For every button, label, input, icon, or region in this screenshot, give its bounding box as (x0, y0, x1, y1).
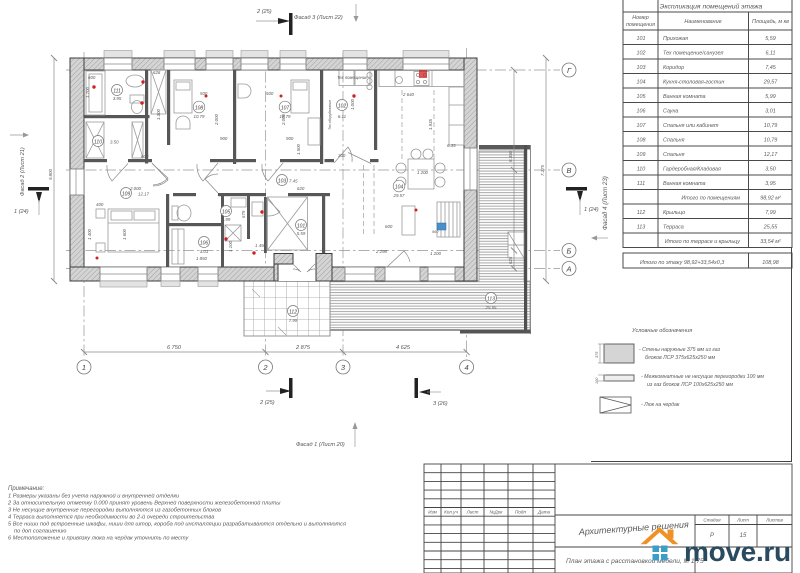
svg-text:110: 110 (637, 167, 646, 173)
svg-text:- Люк на чердак: - Люк на чердак (641, 402, 680, 408)
svg-text:Кухня-столовая-гостин: Кухня-столовая-гостин (663, 80, 724, 86)
svg-text:1 Размеры указаны без учета н: 1 Размеры указаны без учета наружной и в… (8, 493, 180, 500)
svg-text:Спальня: Спальня (663, 152, 685, 158)
svg-text:Кол.уч: Кол.уч (444, 510, 458, 515)
svg-text:1.700: 1.700 (85, 86, 90, 98)
svg-text:Тех помещение: Тех помещение (337, 75, 368, 80)
svg-text:500: 500 (266, 91, 274, 96)
svg-text:105: 105 (222, 210, 231, 216)
svg-text:6.11: 6.11 (338, 114, 347, 119)
svg-text:5,59: 5,59 (765, 36, 776, 42)
svg-text:626: 626 (153, 70, 161, 75)
svg-text:1 200: 1 200 (417, 170, 429, 175)
svg-text:1: 1 (82, 363, 86, 372)
svg-text:107: 107 (281, 106, 290, 112)
svg-text:112: 112 (637, 210, 646, 216)
svg-text:105: 105 (637, 94, 647, 100)
svg-text:400: 400 (96, 202, 104, 207)
svg-text:Крыльцо: Крыльцо (663, 210, 685, 216)
svg-text:375: 375 (595, 351, 599, 358)
svg-text:106: 106 (637, 109, 646, 115)
svg-text:Б: Б (567, 247, 572, 256)
svg-text:108,98: 108,98 (762, 260, 779, 266)
svg-text:12.17: 12.17 (138, 192, 150, 197)
svg-text:33,54 м²: 33,54 м² (760, 239, 781, 245)
svg-text:3 (26): 3 (26) (433, 401, 448, 407)
svg-text:109: 109 (637, 152, 646, 158)
svg-text:2.000: 2.000 (281, 113, 286, 126)
svg-text:3.95: 3.95 (113, 96, 122, 101)
svg-text:300: 300 (338, 153, 346, 158)
svg-text:5.99: 5.99 (222, 217, 231, 222)
svg-text:Итого по помещениям: Итого по помещениям (681, 196, 740, 202)
svg-text:7,45: 7,45 (765, 65, 776, 71)
svg-text:- Межкомнатные не несущие пер: - Межкомнатные не несущие перегородки 10… (641, 374, 764, 380)
svg-text:3,50: 3,50 (765, 167, 776, 173)
svg-text:Стадия: Стадия (703, 518, 721, 523)
svg-text:Лист: Лист (466, 510, 479, 515)
svg-text:10,79: 10,79 (764, 138, 778, 144)
svg-text:113: 113 (487, 297, 495, 303)
svg-text:112: 112 (289, 310, 297, 316)
svg-text:Спальня: Спальня (663, 138, 685, 144)
svg-text:1.000: 1.000 (350, 98, 355, 110)
svg-text:600: 600 (385, 224, 393, 229)
svg-text:107: 107 (637, 123, 647, 129)
svg-text:102: 102 (637, 51, 646, 57)
svg-text:8.350: 8.350 (508, 150, 513, 162)
svg-text:679: 679 (241, 210, 246, 218)
svg-text:Терраса: Терраса (663, 225, 684, 231)
svg-text:Листов: Листов (765, 518, 783, 523)
svg-text:900: 900 (220, 136, 228, 141)
svg-text:111: 111 (637, 181, 645, 187)
svg-text:625: 625 (508, 256, 513, 264)
svg-text:7.175: 7.175 (540, 164, 545, 176)
svg-text:Лист: Лист (736, 518, 749, 523)
svg-text:106: 106 (200, 241, 209, 247)
svg-text:6 750: 6 750 (167, 345, 182, 351)
svg-text:109: 109 (122, 192, 131, 198)
svg-text:500: 500 (200, 91, 208, 96)
svg-text:3.01: 3.01 (200, 249, 209, 254)
svg-text:из газ блоков ЛСР 100х625х250: из газ блоков ЛСР 100х625х250 мм (647, 382, 733, 388)
svg-text:Изм: Изм (428, 510, 437, 515)
svg-text:Прихожая: Прихожая (663, 36, 688, 42)
svg-text:101: 101 (637, 36, 646, 42)
svg-text:4 Терраса выполняется при нео: 4 Терраса выполняется при необходимости … (8, 514, 214, 521)
svg-text:Сауна: Сауна (663, 109, 678, 115)
svg-text:104: 104 (637, 80, 646, 86)
svg-text:- Стены наружные 375 мм из га: - Стены наружные 375 мм из газ (639, 347, 721, 353)
svg-text:600: 600 (88, 75, 96, 80)
svg-text:108: 108 (637, 138, 646, 144)
svg-text:1.935: 1.935 (428, 118, 433, 130)
svg-text:108: 108 (195, 106, 204, 112)
svg-text:1 (24): 1 (24) (584, 207, 599, 213)
svg-text:В: В (566, 166, 571, 175)
svg-text:1.300: 1.300 (156, 108, 161, 120)
svg-text:9.800: 9.800 (48, 168, 53, 180)
svg-text:102: 102 (338, 104, 347, 110)
svg-text:29,57: 29,57 (763, 80, 778, 86)
svg-text:А: А (565, 265, 571, 274)
svg-text:100: 100 (595, 377, 599, 384)
svg-text:2 875: 2 875 (295, 345, 311, 351)
svg-text:1 600: 1 600 (122, 228, 127, 240)
svg-text:Тех помещение/санузел: Тех помещение/санузел (663, 51, 723, 57)
svg-text:Экспликация помещений этажа: Экспликация помещений этажа (660, 3, 763, 11)
svg-text:7.99: 7.99 (289, 318, 298, 323)
svg-text:1 450: 1 450 (255, 243, 267, 248)
svg-text:3 Не несущие внутренние перег: 3 Не несущие внутренние перегородки выпо… (8, 508, 221, 514)
svg-text:Условные обозначения: Условные обозначения (631, 328, 692, 334)
svg-text:Подп: Подп (515, 510, 526, 515)
svg-text:101: 101 (297, 224, 306, 230)
svg-text:2 298: 2 298 (375, 249, 388, 254)
svg-text:блоков ЛСР 375х625х250 мм: блоков ЛСР 375х625х250 мм (645, 355, 715, 361)
svg-text:111: 111 (113, 89, 121, 95)
svg-text:1 850: 1 850 (196, 256, 208, 261)
svg-text:3,01: 3,01 (765, 109, 776, 115)
svg-text:900: 900 (286, 136, 294, 141)
svg-text:620: 620 (297, 186, 305, 191)
svg-text:1 (24): 1 (24) (14, 209, 29, 215)
svg-text:7.45: 7.45 (289, 179, 298, 184)
svg-text:113: 113 (637, 225, 646, 231)
svg-text:10,79: 10,79 (764, 123, 778, 129)
svg-text:5.59: 5.59 (297, 231, 306, 236)
svg-text:25,55: 25,55 (763, 225, 778, 231)
svg-text:2.000: 2.000 (129, 186, 142, 191)
svg-text:Площадь, м кв: Площадь, м кв (752, 19, 789, 25)
svg-text:103: 103 (278, 179, 287, 185)
svg-text:Итого по этажу 98,92+33,54х0,: Итого по этажу 98,92+33,54х0,3 (640, 260, 724, 266)
svg-text:600: 600 (141, 154, 149, 159)
svg-text:Наименование: Наименование (684, 19, 721, 25)
svg-text:98,92 м²: 98,92 м² (760, 196, 781, 202)
svg-text:Итого по террасе и крыльцу: Итого по террасе и крыльцу (665, 239, 741, 245)
svg-text:Спальня или кабинет: Спальня или кабинет (663, 123, 719, 129)
svg-text:3.50: 3.50 (110, 140, 119, 145)
svg-text:4: 4 (465, 363, 469, 372)
svg-text:Фасад 2 (Лист 21): Фасад 2 (Лист 21) (20, 147, 26, 196)
svg-text:104: 104 (395, 185, 404, 191)
svg-text:2 (25): 2 (25) (259, 400, 275, 406)
svg-text:5,99: 5,99 (765, 94, 776, 100)
svg-text:по доп соглашению: по доп соглашению (14, 529, 67, 535)
svg-text:960: 960 (432, 230, 439, 234)
svg-text:Ванная комната: Ванная комната (663, 181, 706, 187)
svg-text:12,17: 12,17 (764, 152, 778, 158)
svg-text:Ванная комната: Ванная комната (663, 94, 706, 100)
svg-text:10.79: 10.79 (194, 114, 206, 119)
svg-text:помещения: помещения (626, 22, 655, 28)
svg-text:2.000: 2.000 (214, 113, 219, 126)
svg-text:1 400: 1 400 (87, 228, 92, 240)
svg-text:2 640: 2 640 (402, 92, 415, 97)
svg-text:25.55: 25.55 (485, 305, 498, 310)
svg-text:2: 2 (262, 363, 268, 372)
svg-text:2 (25): 2 (25) (256, 9, 272, 15)
svg-text:1 100: 1 100 (228, 240, 233, 252)
svg-text:move.ru: move.ru (684, 536, 791, 567)
svg-text:2 За относительную отметку 0.: 2 За относительную отметку 0.000 принят … (7, 500, 281, 507)
svg-text:6.35: 6.35 (447, 143, 456, 148)
svg-text:7,99: 7,99 (765, 210, 776, 216)
svg-text:Примечание:: Примечание: (8, 486, 45, 492)
svg-text:Номер: Номер (632, 15, 649, 21)
svg-text:1.500: 1.500 (296, 143, 301, 155)
svg-text:6,11: 6,11 (765, 51, 775, 57)
svg-text:Тех оборудование: Тех оборудование (328, 100, 332, 130)
svg-text:4 625: 4 625 (396, 345, 411, 351)
svg-text:29.57: 29.57 (393, 193, 406, 198)
svg-text:Фасад 4 (Лист 23): Фасад 4 (Лист 23) (602, 176, 609, 230)
svg-text:110: 110 (94, 140, 102, 146)
svg-text:№Док: №Док (490, 510, 504, 515)
svg-text:5 Все ниши под встроенные шка: 5 Все ниши под встроенные шкафы, ниши дл… (8, 522, 346, 528)
svg-text:103: 103 (637, 65, 646, 71)
svg-text:Коридор: Коридор (663, 65, 684, 71)
svg-text:Гардеробная/Кладовая: Гардеробная/Кладовая (663, 167, 721, 173)
svg-text:1 200: 1 200 (430, 251, 442, 256)
svg-text:Дата: Дата (537, 510, 551, 515)
svg-text:3,95: 3,95 (765, 181, 776, 187)
svg-text:6 Местоположение и привязку л: 6 Местоположение и привязку люка на черд… (8, 536, 190, 542)
svg-text:Фасад 1 (Лист 20): Фасад 1 (Лист 20) (296, 442, 345, 448)
svg-text:Фасад 3 (Лист 22): Фасад 3 (Лист 22) (294, 15, 343, 21)
